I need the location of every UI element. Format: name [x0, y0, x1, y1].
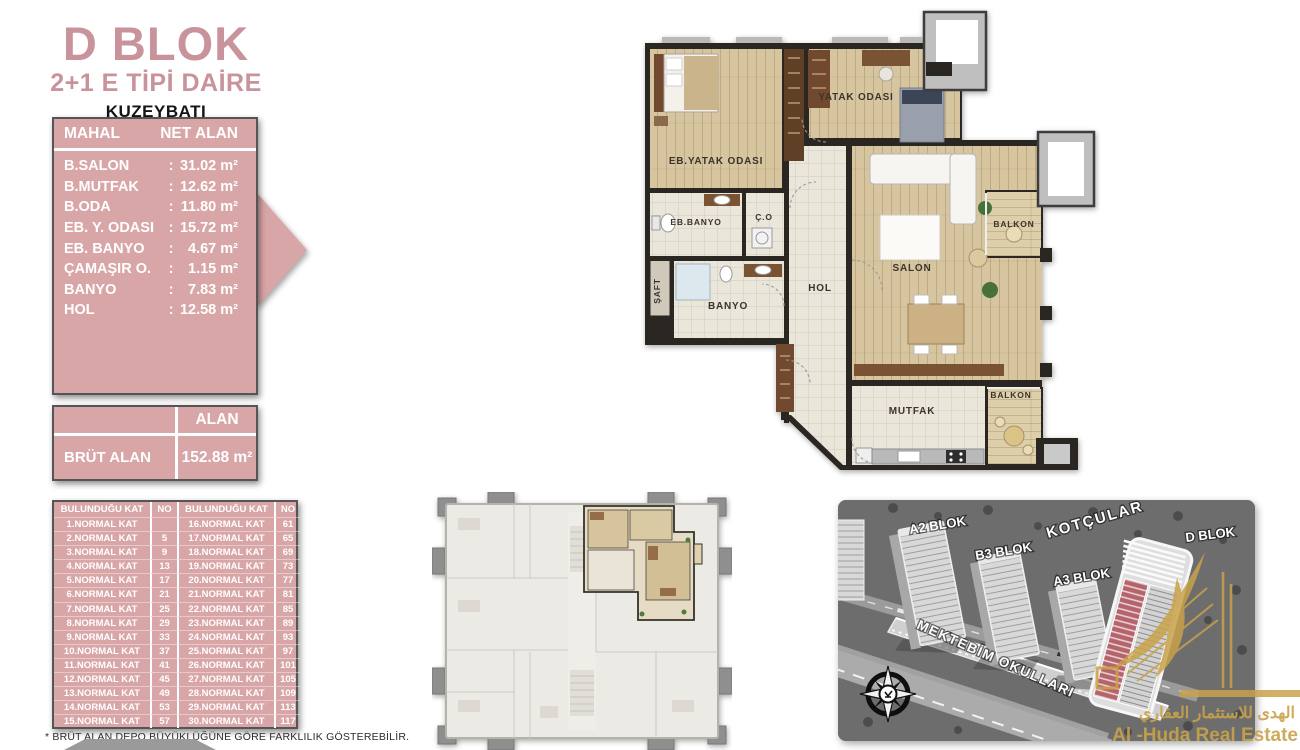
separator-colon: :: [164, 261, 178, 277]
separator-colon: :: [164, 282, 178, 298]
apartment-no-cell: 97: [274, 644, 300, 658]
floor-name-cell: 6.NORMAL KAT: [54, 587, 150, 601]
separator-colon: :: [164, 158, 178, 174]
apartment-no-cell: 81: [274, 587, 300, 601]
room-label: B.MUTFAK: [64, 179, 164, 195]
apartment-no-cell: 41: [150, 658, 177, 672]
room-label: B.ODA: [64, 199, 164, 215]
floor-name-cell: 29.NORMAL KAT: [177, 700, 274, 714]
floor-number-grid: BULUNDUĞU KATNOBULUNDUĞU KATNO1.NORMAL K…: [54, 502, 296, 728]
floor-number-table: BULUNDUĞU KATNOBULUNDUĞU KATNO1.NORMAL K…: [52, 500, 298, 729]
floor-name-cell: 22.NORMAL KAT: [177, 602, 274, 616]
floor-name-cell: 8.NORMAL KAT: [54, 616, 150, 630]
gross-area-header-row: ALAN: [54, 407, 256, 436]
floor-name-cell: 25.NORMAL KAT: [177, 644, 274, 658]
net-area-table-header: MAHAL NET ALAN: [54, 119, 256, 151]
apartment-no-cell: 5: [150, 531, 177, 545]
apartment-no-cell: 53: [150, 700, 177, 714]
floor-name-cell: 30.NORMAL KAT: [177, 714, 274, 728]
col-no: NO: [274, 502, 300, 517]
label-eb-yatak-odasi: EB.YATAK ODASI: [669, 156, 763, 167]
site-map: A2 BLOK B3 BLOK A3 BLOK KOTÇULAR D BLOK …: [838, 500, 1255, 741]
unit-type-title: 2+1 E TİPİ DAİRE: [40, 69, 272, 98]
net-area-row: EB. Y. ODASI:15.72 m²: [54, 218, 256, 239]
floor-name-cell: 15.NORMAL KAT: [54, 714, 150, 728]
floor-name-cell: 11.NORMAL KAT: [54, 658, 150, 672]
col-net-alan: NET ALAN: [160, 125, 238, 143]
label-yatak-odasi: YATAK ODASI: [818, 92, 893, 103]
apartment-no-cell: 37: [150, 644, 177, 658]
label-balkon-lower: BALKON: [990, 390, 1031, 400]
col-bulundugu-kat: BULUNDUĞU KAT: [54, 502, 150, 517]
separator-colon: :: [164, 220, 178, 236]
apartment-no-cell: 57: [150, 714, 177, 728]
floor-name-cell: 23.NORMAL KAT: [177, 616, 274, 630]
net-area-row: B.SALON:31.02 m²: [54, 156, 256, 177]
label-eb-banyo: EB.BANYO: [670, 217, 721, 227]
block-title: D BLOK: [40, 22, 272, 67]
col-mahal: MAHAL: [64, 125, 120, 143]
plan-shell: [645, 12, 1094, 470]
room-area-value: 1.15 m²: [178, 261, 246, 277]
apartment-no-cell: 73: [274, 559, 300, 573]
room-label: EB. BANYO: [64, 241, 164, 257]
floor-name-cell: 21.NORMAL KAT: [177, 587, 274, 601]
gross-area-value: 152.88 m²: [175, 436, 256, 479]
arrow-right-decoration: [256, 192, 307, 308]
separator-colon: :: [164, 302, 178, 318]
room-area-value: 7.83 m²: [178, 282, 246, 298]
floor-name-cell: 20.NORMAL KAT: [177, 573, 274, 587]
floor-name-cell: 19.NORMAL KAT: [177, 559, 274, 573]
separator-colon: :: [164, 199, 178, 215]
floor-plate: [432, 492, 732, 750]
net-area-table: MAHAL NET ALAN B.SALON:31.02 m²B.MUTFAK:…: [52, 117, 258, 395]
room-label: HOL: [64, 302, 164, 318]
apartment-no-cell: 117: [274, 714, 300, 728]
room-area-value: 11.80 m²: [178, 199, 246, 215]
room-area-value: 12.58 m²: [178, 302, 246, 318]
room-area-value: 15.72 m²: [178, 220, 246, 236]
net-area-row: ÇAMAŞIR O.:1.15 m²: [54, 259, 256, 280]
floor-name-cell: 16.NORMAL KAT: [177, 517, 274, 531]
label-hol: HOL: [808, 283, 832, 294]
apartment-no-cell: 113: [274, 700, 300, 714]
col-alan: ALAN: [175, 407, 256, 433]
apartment-no-cell: 17: [150, 573, 177, 587]
apartment-no-cell: 61: [274, 517, 300, 531]
net-area-row: HOL:12.58 m²: [54, 300, 256, 321]
gross-header-empty: [54, 407, 175, 433]
separator-colon: :: [164, 179, 178, 195]
apartment-no-cell: 9: [150, 545, 177, 559]
label-co: Ç.O: [755, 212, 773, 222]
room-area-value: 31.02 m²: [178, 158, 246, 174]
floor-plate-key-plan: [432, 492, 732, 750]
room-label: EB. Y. ODASI: [64, 220, 164, 236]
net-area-row: B.MUTFAK:12.62 m²: [54, 177, 256, 198]
apartment-no-cell: 45: [150, 672, 177, 686]
floor-name-cell: 13.NORMAL KAT: [54, 686, 150, 700]
label-salon: SALON: [893, 263, 932, 274]
floor-name-cell: 12.NORMAL KAT: [54, 672, 150, 686]
window-sills: [662, 37, 922, 43]
room-area-value: 12.62 m²: [178, 179, 246, 195]
apartment-no-cell: 13: [150, 559, 177, 573]
net-area-row: B.ODA:11.80 m²: [54, 197, 256, 218]
corner-stub-bottom-right: [1036, 438, 1078, 470]
label-balkon-upper: BALKON: [993, 219, 1034, 229]
col-bulundugu-kat: BULUNDUĞU KAT: [177, 502, 274, 517]
floor-name-cell: 3.NORMAL KAT: [54, 545, 150, 559]
apartment-no-cell: 109: [274, 686, 300, 700]
col-no: NO: [150, 502, 177, 517]
apartment-no-cell: 49: [150, 686, 177, 700]
gross-area-value-row: BRÜT ALAN 152.88 m²: [54, 436, 256, 479]
net-area-rows: B.SALON:31.02 m²B.MUTFAK:12.62 m²B.ODA:1…: [54, 151, 256, 321]
title-block: D BLOK 2+1 E TİPİ DAİRE KUZEYBATI: [40, 22, 272, 122]
floor-name-cell: 18.NORMAL KAT: [177, 545, 274, 559]
net-area-row: BANYO:7.83 m²: [54, 280, 256, 301]
floor-name-cell: 17.NORMAL KAT: [177, 531, 274, 545]
gross-area-table: ALAN BRÜT ALAN 152.88 m²: [52, 405, 258, 481]
net-area-row: EB. BANYO:4.67 m²: [54, 238, 256, 259]
room-label: BANYO: [64, 282, 164, 298]
floor-name-cell: 26.NORMAL KAT: [177, 658, 274, 672]
label-banyo: BANYO: [708, 301, 748, 312]
apartment-no-cell: 89: [274, 616, 300, 630]
floor-name-cell: 9.NORMAL KAT: [54, 630, 150, 644]
tower-partial-left: [838, 520, 864, 600]
apartment-no-cell: 77: [274, 573, 300, 587]
apartment-no-cell: 85: [274, 602, 300, 616]
apartment-floor-plan: YATAK ODASI EB.YATAK ODASI EB.BANYO Ç.O …: [640, 8, 1100, 480]
floor-name-cell: 1.NORMAL KAT: [54, 517, 150, 531]
apartment-no-cell: 105: [274, 672, 300, 686]
floor-name-cell: 10.NORMAL KAT: [54, 644, 150, 658]
floor-name-cell: 24.NORMAL KAT: [177, 630, 274, 644]
room-area-value: 4.67 m²: [178, 241, 246, 257]
label-mutfak: MUTFAK: [889, 406, 935, 417]
site-map-render: A2 BLOK B3 BLOK A3 BLOK KOTÇULAR D BLOK …: [838, 500, 1255, 741]
apartment-no-cell: 93: [274, 630, 300, 644]
apartment-no-cell: 33: [150, 630, 177, 644]
floor-name-cell: 28.NORMAL KAT: [177, 686, 274, 700]
floor-name-cell: 5.NORMAL KAT: [54, 573, 150, 587]
floor-name-cell: 2.NORMAL KAT: [54, 531, 150, 545]
room-label: B.SALON: [64, 158, 164, 174]
gross-area-label: BRÜT ALAN: [54, 436, 175, 479]
floor-name-cell: 4.NORMAL KAT: [54, 559, 150, 573]
floor-name-cell: 7.NORMAL KAT: [54, 602, 150, 616]
apartment-no-cell: 69: [274, 545, 300, 559]
room-label: ÇAMAŞIR O.: [64, 261, 164, 277]
bottom-tab-decoration: [64, 739, 216, 750]
apartment-no-cell: 25: [150, 602, 177, 616]
page: D BLOK 2+1 E TİPİ DAİRE KUZEYBATI MAHAL …: [0, 0, 1300, 750]
apartment-no-cell: 21: [150, 587, 177, 601]
apartment-no-cell: 65: [274, 531, 300, 545]
floor-name-cell: 14.NORMAL KAT: [54, 700, 150, 714]
floor-name-cell: 27.NORMAL KAT: [177, 672, 274, 686]
apartment-no-cell: 101: [274, 658, 300, 672]
apartment-no-cell: 29: [150, 616, 177, 630]
apartment-no-cell: [150, 517, 177, 531]
separator-colon: :: [164, 241, 178, 257]
shaft-block-right: [1038, 132, 1094, 206]
shaft-block-top: [924, 12, 986, 90]
label-saft: ŞAFT: [652, 278, 662, 303]
